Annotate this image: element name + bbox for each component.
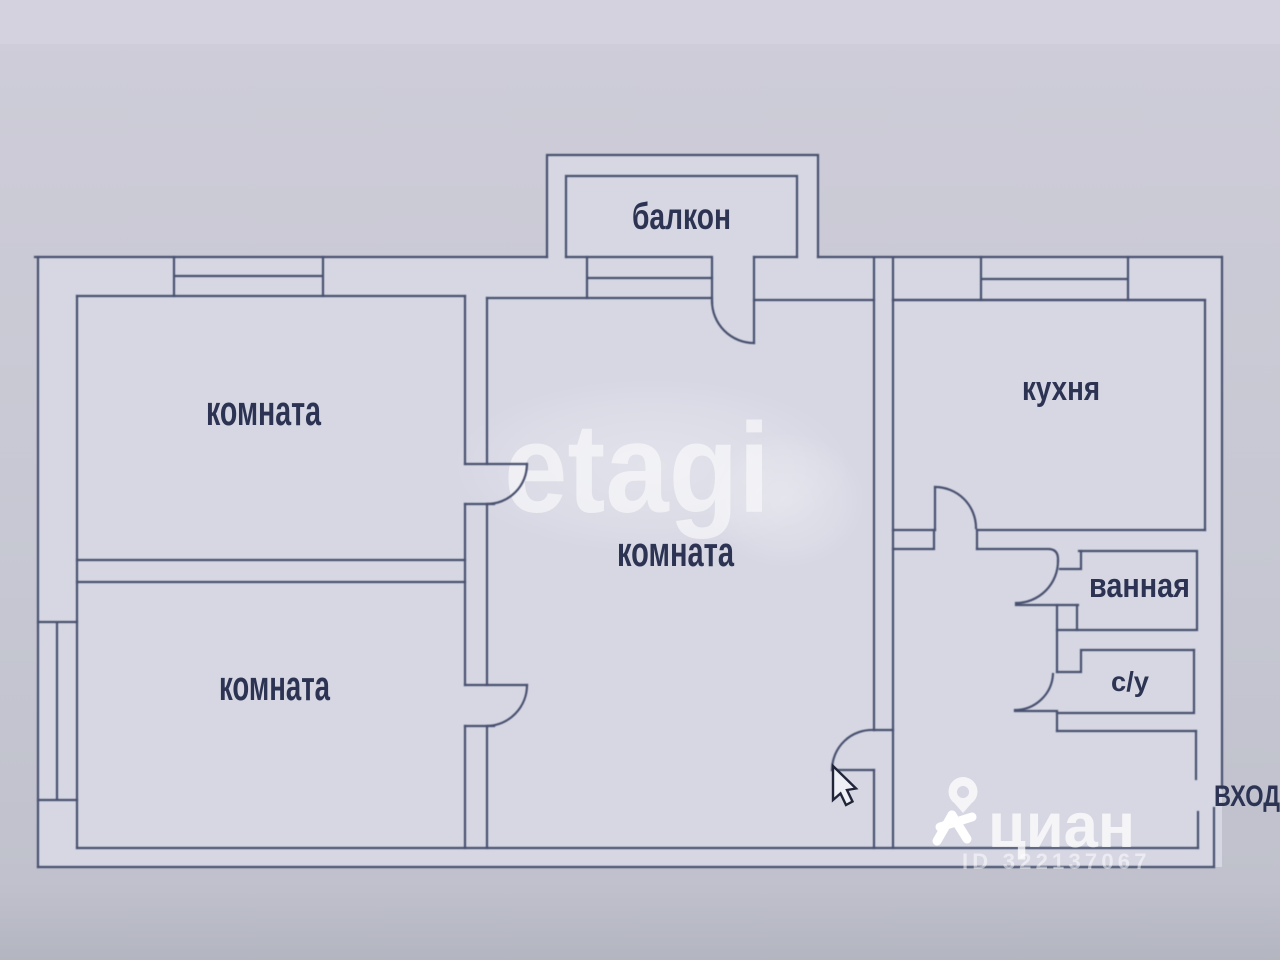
svg-text:комната: комната (206, 387, 321, 434)
svg-text:с/у: с/у (1111, 666, 1149, 697)
svg-text:ВХОД: ВХОД (1214, 780, 1280, 813)
svg-text:ванная: ванная (1089, 567, 1190, 605)
svg-text:etagi: etagi (504, 397, 770, 539)
svg-text:комната: комната (617, 528, 734, 575)
svg-text:комната: комната (219, 662, 330, 709)
svg-text:кухня: кухня (1022, 370, 1100, 408)
svg-text:ID 322137067: ID 322137067 (962, 849, 1151, 874)
svg-text:балкон: балкон (632, 196, 731, 237)
